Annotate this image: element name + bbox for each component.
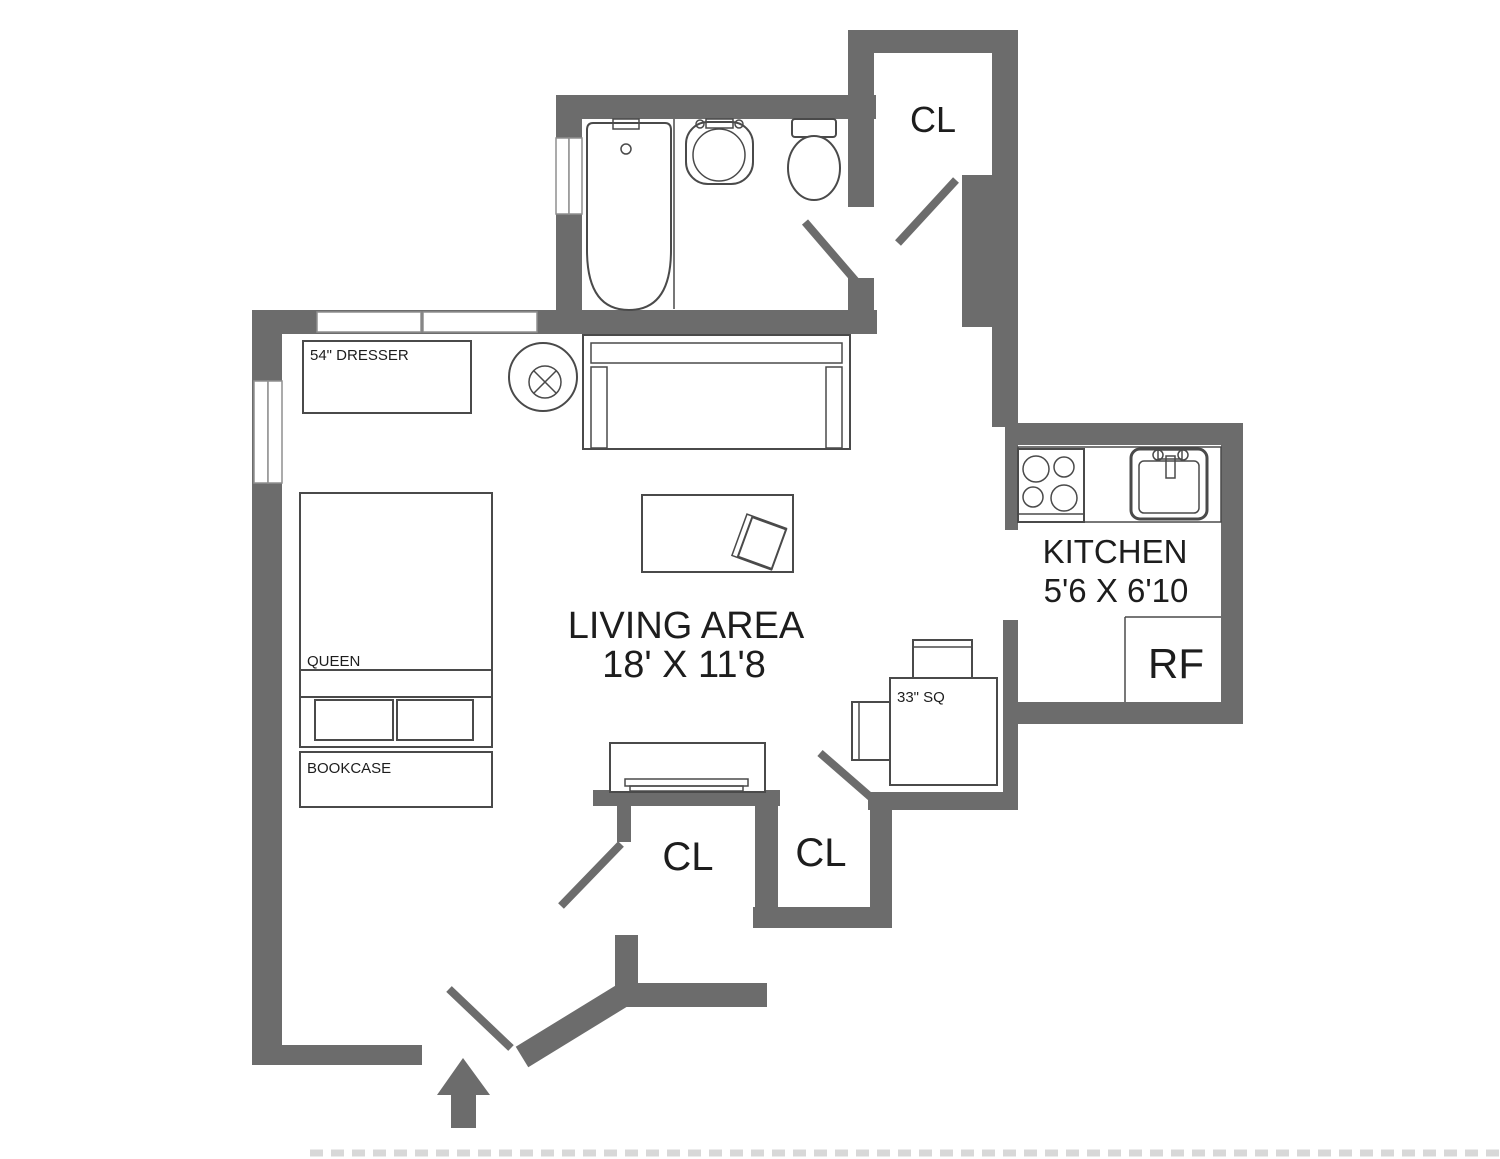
toilet-bowl-icon bbox=[788, 136, 840, 200]
kitchen-label: KITCHEN bbox=[1043, 533, 1188, 570]
closet-top-label: CL bbox=[910, 99, 956, 140]
kitchen-bottom-wall bbox=[1003, 702, 1243, 724]
bathroom-fixtures bbox=[587, 119, 840, 310]
entry-diagonal-wall bbox=[522, 992, 628, 1057]
closet2-label: CL bbox=[795, 831, 846, 875]
left-window-pane-1 bbox=[254, 381, 268, 483]
furniture bbox=[300, 335, 997, 807]
closet1-label: CL bbox=[662, 835, 713, 879]
bathroom-bottom-wall bbox=[582, 310, 877, 334]
bathroom-door bbox=[805, 222, 860, 286]
dining-table-label: 33" SQ bbox=[897, 689, 945, 706]
entry-arrow-icon bbox=[437, 1058, 490, 1128]
floor-plan: CL LIVING AREA 18' X 11'8 KITCHEN 5'6 X … bbox=[0, 0, 1500, 1159]
closet1-left-stub bbox=[617, 806, 631, 842]
bed-mattress bbox=[300, 493, 492, 670]
top-window-2 bbox=[423, 312, 537, 332]
kitchen-dimensions: 5'6 X 6'10 bbox=[1044, 572, 1189, 609]
closet-top-door bbox=[898, 180, 956, 243]
entry-door bbox=[449, 989, 511, 1048]
sofa-body bbox=[583, 335, 850, 449]
bathroom-window-pane-1 bbox=[556, 138, 569, 214]
chair-left bbox=[852, 702, 890, 760]
bed-pillow-right bbox=[397, 700, 473, 740]
living-area-label: LIVING AREA bbox=[568, 605, 805, 647]
bed-footband bbox=[300, 670, 492, 697]
living-area-dimensions: 18' X 11'8 bbox=[602, 644, 766, 686]
bath-sink-icon bbox=[686, 122, 753, 184]
dresser-label: 54" DRESSER bbox=[310, 347, 409, 364]
bathroom-right-wall-lower bbox=[848, 278, 874, 334]
chair-top bbox=[913, 640, 972, 678]
bookcase-label: BOOKCASE bbox=[307, 760, 391, 777]
closet1-bottom-wall bbox=[615, 983, 767, 1007]
stove-icon bbox=[1018, 449, 1084, 522]
bed-label: QUEEN bbox=[307, 653, 360, 670]
kitchen-top-wall bbox=[1005, 423, 1243, 445]
bed-pillow-left bbox=[315, 700, 393, 740]
refrigerator-label: RF bbox=[1148, 640, 1204, 687]
closet-door-jamb bbox=[962, 175, 1018, 197]
toilet-tank-icon bbox=[792, 119, 836, 137]
side-table bbox=[509, 343, 577, 411]
closet1-door bbox=[561, 844, 621, 906]
closets-middle-wall bbox=[755, 790, 778, 923]
bathroom-right-wall-upper bbox=[848, 30, 874, 207]
closet2-right-wall bbox=[870, 803, 892, 907]
kitchen-right-wall bbox=[1221, 423, 1243, 724]
left-window-pane-2 bbox=[268, 381, 282, 483]
kitchen-left-upper-wall bbox=[1005, 445, 1018, 530]
right-wall bbox=[992, 30, 1018, 427]
bathtub-icon bbox=[587, 123, 671, 310]
bathroom-top-wall bbox=[556, 95, 876, 119]
vestibule-wall bbox=[962, 175, 992, 327]
bottom-left-wall bbox=[252, 1045, 422, 1065]
tv-console bbox=[610, 743, 765, 792]
top-window-1 bbox=[317, 312, 421, 332]
bathroom-window-pane-2 bbox=[569, 138, 582, 214]
